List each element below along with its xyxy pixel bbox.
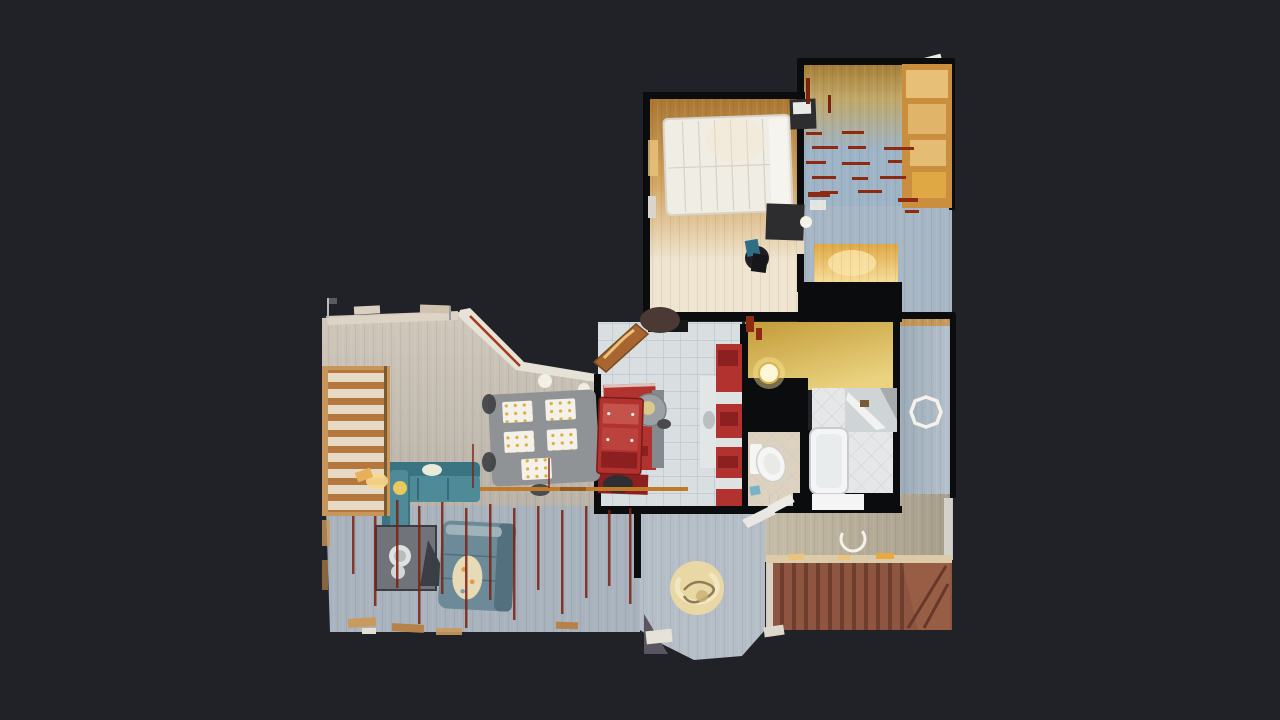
cabinet-gap xyxy=(716,478,742,489)
scan-streak xyxy=(396,500,399,588)
scan-streak xyxy=(374,502,377,606)
desk xyxy=(765,203,804,240)
scan-dash xyxy=(828,95,831,113)
scan-dash xyxy=(842,131,864,134)
scan-dash xyxy=(858,190,882,193)
cabinet-panel xyxy=(720,412,738,426)
torn-edge xyxy=(322,520,330,546)
scan-dash xyxy=(812,146,838,149)
torn-edge xyxy=(354,305,380,314)
torn-edge xyxy=(436,628,462,635)
cabinet-panel xyxy=(718,350,738,366)
scan-streak xyxy=(489,504,492,600)
stair-stringer xyxy=(766,563,773,630)
scan-streak xyxy=(608,510,611,586)
scan-dash xyxy=(806,161,826,164)
scan-streak xyxy=(513,508,516,620)
stool xyxy=(657,419,671,429)
scan-streak xyxy=(629,508,632,604)
entry-step xyxy=(645,629,672,645)
scan-streak xyxy=(472,444,474,488)
chair xyxy=(482,452,496,472)
blanket xyxy=(422,464,442,476)
shower-drain xyxy=(860,400,869,407)
grain-overlay xyxy=(897,318,953,496)
scan-streak xyxy=(465,508,468,628)
bath-mat xyxy=(749,485,760,496)
rail-gold-bit xyxy=(876,553,894,559)
dresser xyxy=(648,140,658,176)
scan-dash xyxy=(852,177,868,180)
wall xyxy=(797,58,804,292)
placemat-pattern xyxy=(502,401,533,424)
torn-edge xyxy=(556,622,578,630)
gray-sofa xyxy=(438,520,517,612)
floorplan-canvas[interactable] xyxy=(0,0,1280,720)
placemat-pattern xyxy=(547,428,578,451)
scan-dash xyxy=(842,162,870,165)
bed-pillow-band xyxy=(768,118,789,209)
bag-black xyxy=(751,253,768,273)
wardrobe xyxy=(906,70,948,98)
dining-table xyxy=(488,389,601,487)
rail-gold-bit xyxy=(838,555,850,560)
vanity xyxy=(812,494,864,510)
scan-dash xyxy=(756,328,762,340)
placemat-pattern xyxy=(521,458,552,481)
cabinet-gap xyxy=(716,438,742,447)
scan-dash xyxy=(806,132,822,135)
wall xyxy=(643,92,805,99)
ceiling-light-glow xyxy=(705,118,765,162)
circle-blob xyxy=(696,590,708,602)
machine-drum-inner xyxy=(394,550,406,562)
scan-streak xyxy=(418,506,421,624)
wall xyxy=(895,312,955,319)
scan-dash xyxy=(746,316,754,332)
wall xyxy=(634,512,641,578)
scan-dash xyxy=(808,192,830,197)
wall xyxy=(800,58,954,65)
cabinet-gap xyxy=(716,392,742,404)
bathtub-basin xyxy=(816,434,842,488)
scan-streak xyxy=(548,458,550,488)
rail-gold-bit xyxy=(788,553,804,560)
door-right xyxy=(944,498,953,560)
red-hutch xyxy=(597,397,644,474)
scan-dash xyxy=(848,146,866,149)
scan-streak xyxy=(585,506,588,598)
light-bulb-artifact xyxy=(759,363,779,383)
placemat-pattern xyxy=(545,398,576,421)
lower-staircase xyxy=(763,553,952,637)
hutch-panel xyxy=(601,451,638,468)
cabinet-panel xyxy=(718,456,738,468)
railing-dark-seg xyxy=(560,487,586,491)
shelf xyxy=(910,140,946,166)
scan-dash xyxy=(806,78,810,104)
wall xyxy=(950,314,956,498)
scan-dash xyxy=(884,147,914,150)
torn-edge xyxy=(322,560,328,590)
scan-dash xyxy=(880,176,906,179)
lamp-artifact xyxy=(538,374,552,388)
chair-dark xyxy=(640,307,680,333)
wardrobe xyxy=(908,104,946,134)
torn-edge xyxy=(392,623,424,633)
dresser xyxy=(648,196,656,218)
chair xyxy=(482,394,496,414)
stair-stringer xyxy=(384,366,387,516)
dresser-white xyxy=(810,200,826,210)
scan-streak xyxy=(537,506,540,590)
stairwell-void xyxy=(798,282,902,322)
scan-dash xyxy=(905,210,919,213)
stair-risers xyxy=(768,562,904,630)
scan-dash xyxy=(888,160,902,163)
torn-edge xyxy=(420,304,450,313)
pole-flag xyxy=(329,298,337,304)
scan-dash xyxy=(812,176,836,179)
door-artifact xyxy=(800,216,812,228)
torn-edge xyxy=(362,628,376,634)
placemat-pattern xyxy=(504,431,535,454)
shelf xyxy=(912,172,946,198)
pillow xyxy=(393,481,407,495)
scan-streak xyxy=(441,502,444,594)
scan-streak xyxy=(561,510,564,614)
pole-artifact xyxy=(327,298,329,318)
pole-artifact xyxy=(449,306,451,320)
left-staircase xyxy=(322,366,390,516)
scan-dash xyxy=(898,198,918,202)
stair-treads xyxy=(328,370,384,512)
sink xyxy=(703,411,715,429)
